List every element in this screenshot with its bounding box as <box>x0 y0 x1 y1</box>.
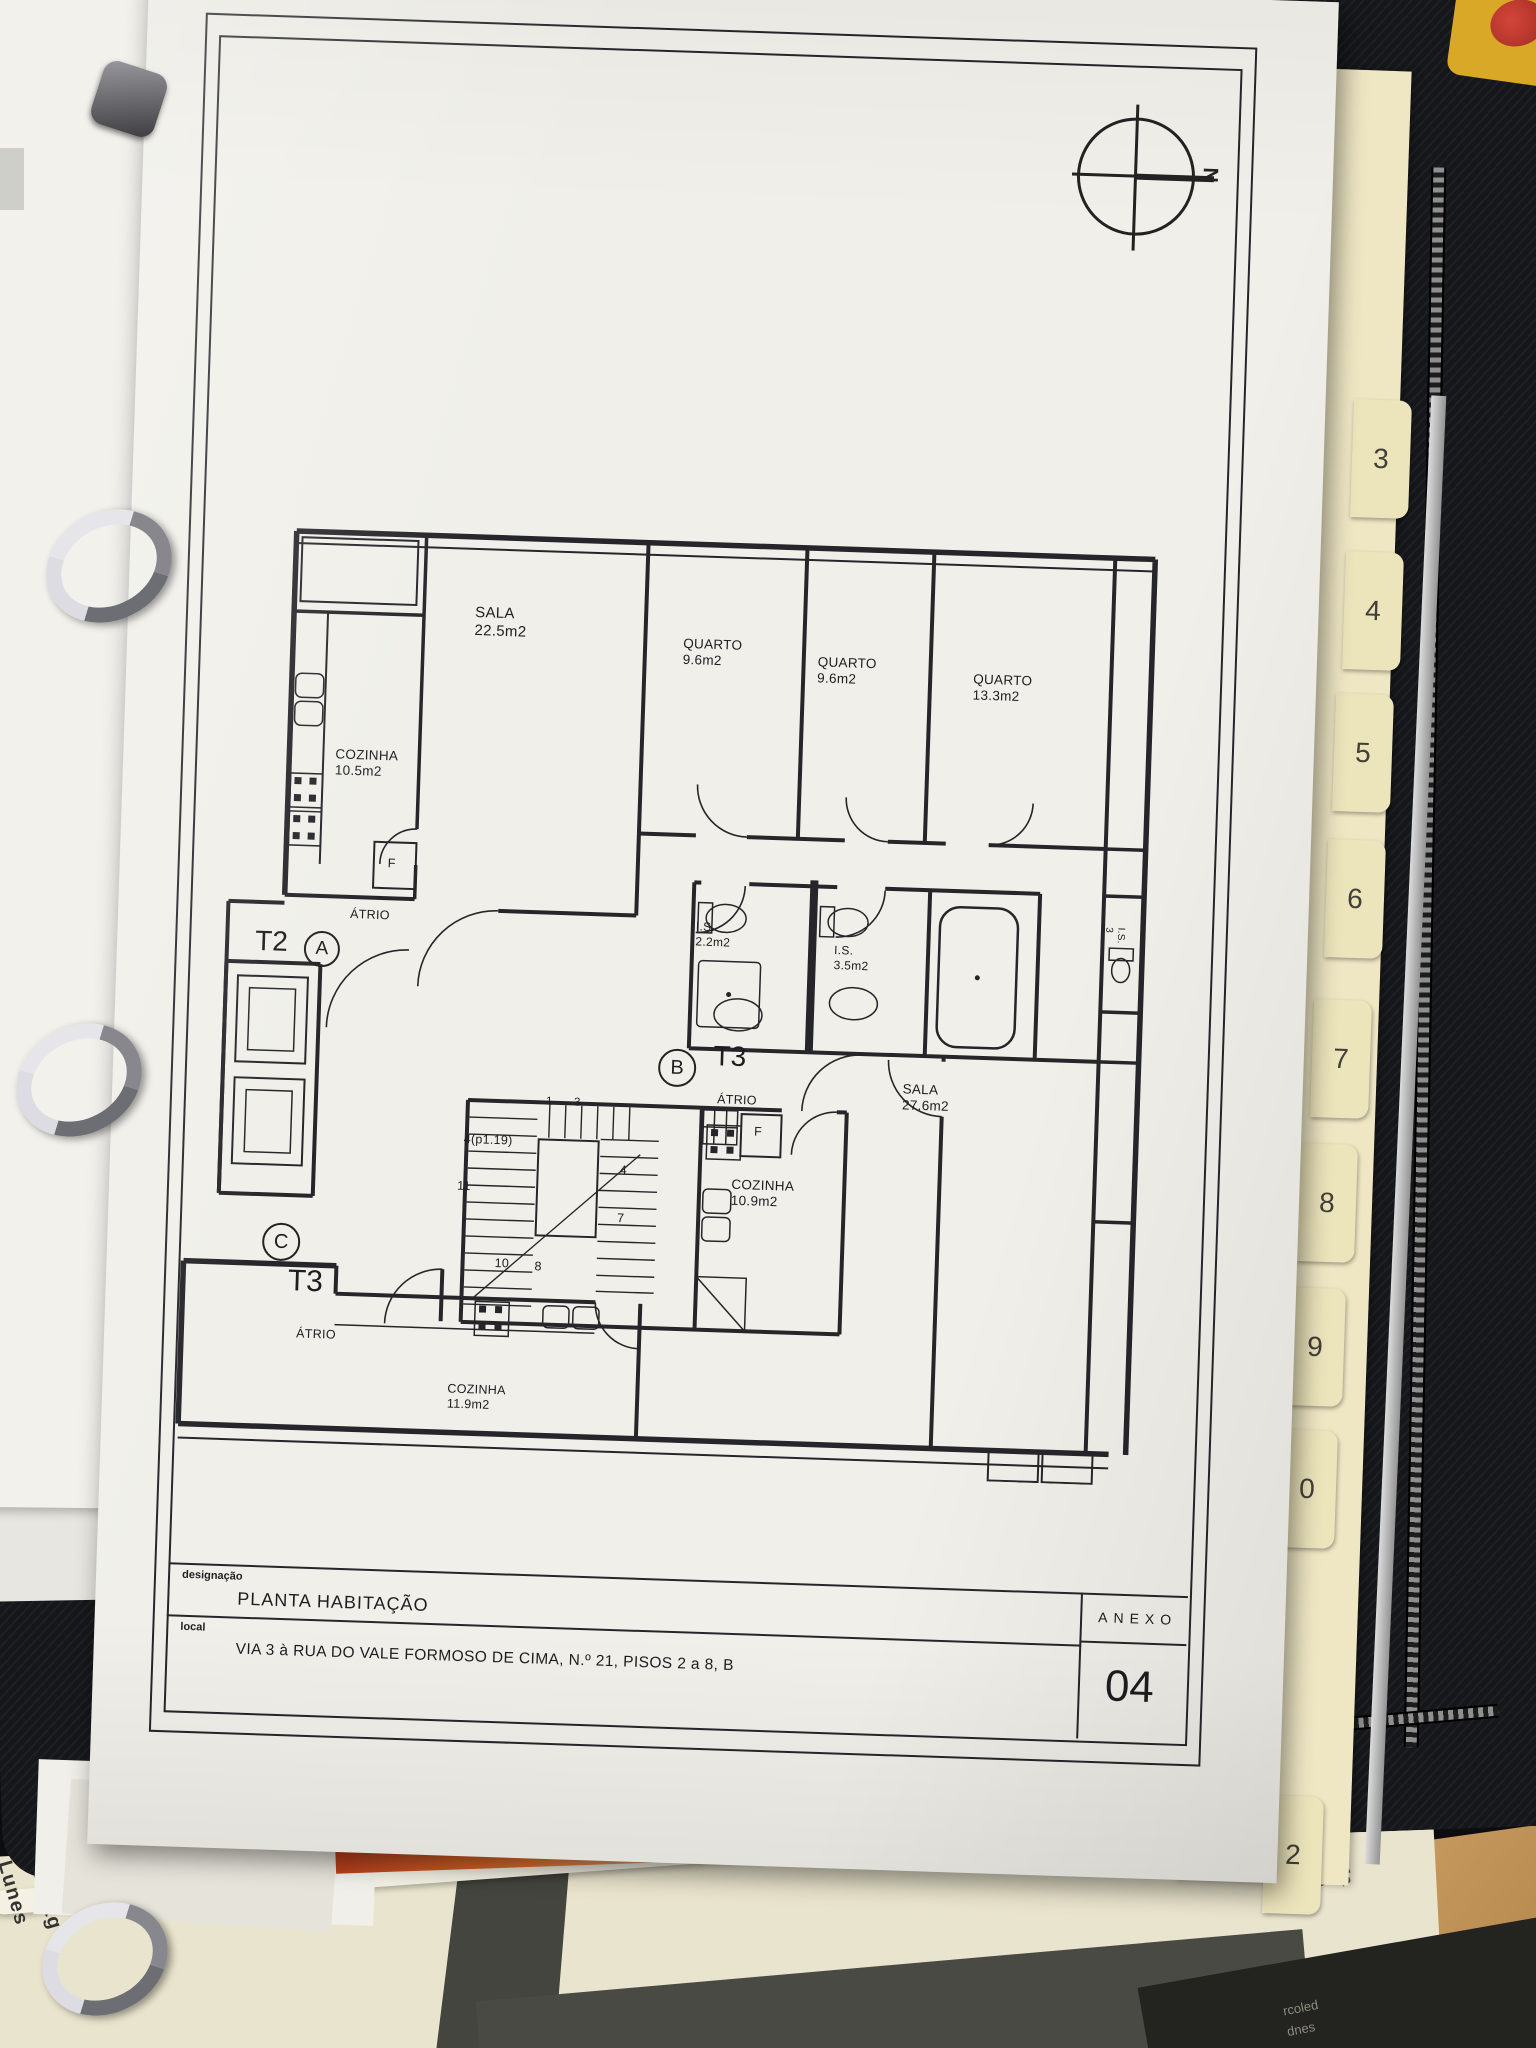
room-name: I.S. <box>1114 927 1127 944</box>
room-area: 10.9m2 <box>731 1193 794 1212</box>
stair-number: 10 <box>494 1256 509 1272</box>
tab-number: 5 <box>1355 737 1372 770</box>
paper-sketch-mark <box>0 148 24 210</box>
room-name: QUARTO <box>683 636 743 654</box>
compass-north-label: N <box>1197 167 1221 183</box>
room-label-is-large: I.S. 3.5m2 <box>833 943 869 973</box>
room-area: 22.5m2 <box>474 622 526 642</box>
local-label: local <box>180 1621 205 1634</box>
stair-number: 4 <box>619 1163 627 1178</box>
room-name: SALA <box>902 1081 949 1099</box>
room-area: 9.6m2 <box>682 652 742 670</box>
annex-label: ANEXO <box>1098 1609 1178 1628</box>
stair-number: 4(p1.19) <box>463 1132 512 1149</box>
tab-number: 3 <box>1373 443 1390 476</box>
binder-tab[interactable]: 4 <box>1342 551 1404 671</box>
room-name: COZINHA <box>731 1177 794 1196</box>
room-name: I.S. <box>834 943 869 959</box>
stair-number: 1 <box>546 1095 553 1109</box>
tab-number: 6 <box>1347 883 1364 916</box>
marker-f: F <box>388 856 396 872</box>
binder-tab[interactable]: 5 <box>1332 693 1394 813</box>
tab-number: 0 <box>1299 1473 1316 1506</box>
room-label-atrio-b: ÁTRIO <box>717 1092 757 1109</box>
room-area: 10.5m2 <box>335 763 398 782</box>
room-area: 2.2m2 <box>695 934 730 950</box>
room-name: I.S. <box>696 919 731 935</box>
room-label-atrio-c: ÁTRIO <box>296 1326 336 1343</box>
room-label-cozinha-a: COZINHA 10.5m2 <box>335 746 399 781</box>
binder-tab[interactable]: 6 <box>1324 839 1386 959</box>
photo-scene: Lundi Montag Lunes Ma Di M rcoled dnes 3… <box>0 0 1536 2048</box>
tab-number: 2 <box>1285 1839 1302 1872</box>
burner-dots <box>277 777 986 1346</box>
tab-number: 8 <box>1319 1187 1336 1220</box>
room-area: 27.6m2 <box>902 1098 949 1116</box>
party-wall <box>809 880 815 1052</box>
tab-number: 9 <box>1307 1331 1324 1364</box>
room-label-quarto-1: QUARTO 9.6m2 <box>682 636 742 671</box>
marker-f: F <box>754 1124 762 1140</box>
room-label-sala-b: SALA 27.6m2 <box>902 1081 950 1115</box>
room-label-cozinha-b: COZINHA 10.9m2 <box>731 1177 795 1212</box>
room-label-is-right: I.S. 3 <box>1101 927 1126 944</box>
annex-number: 04 <box>1104 1661 1155 1713</box>
room-area: 13.3m2 <box>972 688 1032 706</box>
room-area: 11.9m2 <box>447 1397 506 1414</box>
room-name: ÁTRIO <box>350 907 390 924</box>
room-label-cozinha-c: COZINHA 11.9m2 <box>447 1381 506 1413</box>
room-label-quarto-2: QUARTO 9.6m2 <box>817 654 877 689</box>
room-name: QUARTO <box>817 654 877 672</box>
outer-walls <box>178 528 1155 1455</box>
stair-number: 3 <box>574 1095 581 1109</box>
stair-number: 7 <box>617 1211 625 1226</box>
tab-number: 4 <box>1365 595 1382 628</box>
unit-type-b: T3 <box>713 1040 747 1073</box>
room-name: ÁTRIO <box>296 1326 336 1343</box>
room-label-is-small: I.S. 2.2m2 <box>695 919 731 949</box>
room-name: QUARTO <box>973 671 1033 689</box>
room-area: 3 <box>1101 927 1114 944</box>
room-label-sala-a: SALA 22.5m2 <box>474 604 527 642</box>
room-area: 3.5m2 <box>833 958 868 974</box>
room-name: COZINHA <box>335 746 398 765</box>
room-label-quarto-3: QUARTO 13.3m2 <box>972 671 1032 706</box>
unit-type-c: T3 <box>287 1264 323 1299</box>
book-text-fragments: rcoled dnes <box>1281 1995 1324 2043</box>
stair-number: 11 <box>457 1179 471 1195</box>
stair-number: 8 <box>534 1259 542 1274</box>
room-name: SALA <box>475 604 527 624</box>
binder-tab[interactable]: 3 <box>1350 399 1412 519</box>
room-area: 9.6m2 <box>817 671 877 689</box>
tab-number: 7 <box>1333 1043 1350 1076</box>
main-walls <box>211 529 1115 1454</box>
room-label-atrio-a: ÁTRIO <box>350 907 390 924</box>
binder-tab[interactable]: 8 <box>1296 1143 1358 1263</box>
unit-type-a: T2 <box>255 925 289 958</box>
designation-label: designação <box>182 1569 243 1583</box>
room-name: ÁTRIO <box>717 1092 757 1109</box>
binder-tab[interactable]: 7 <box>1310 999 1372 1119</box>
plan-sheet[interactable]: N <box>87 0 1339 1883</box>
